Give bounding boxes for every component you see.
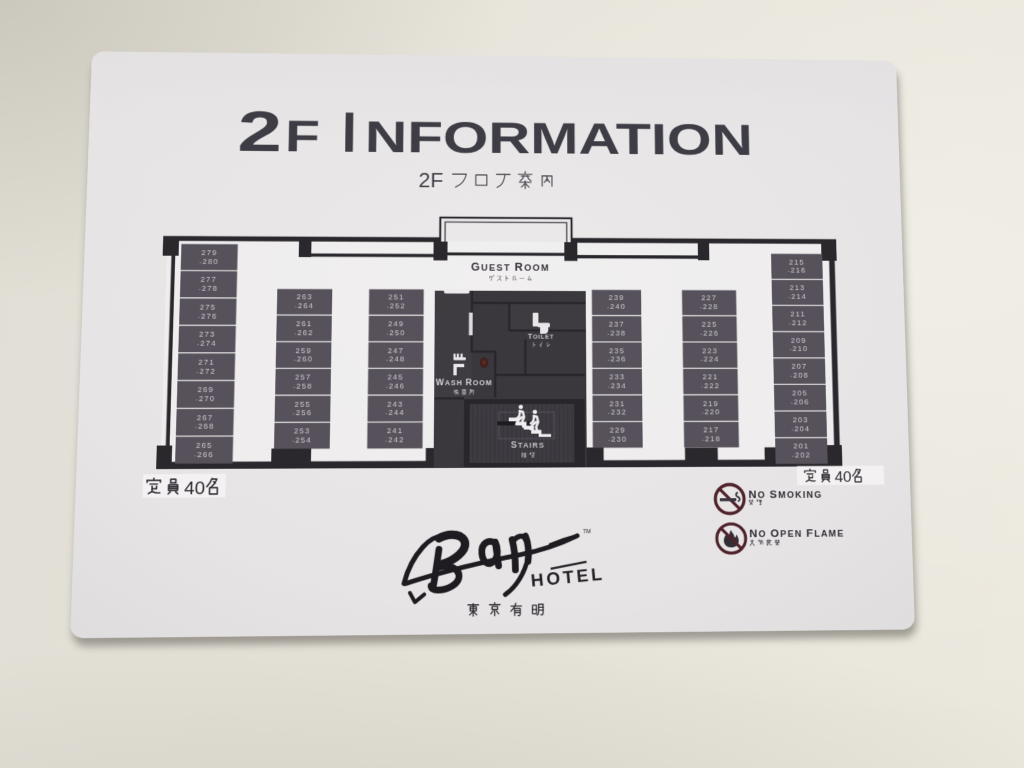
svg-text:-270: -270 bbox=[196, 394, 216, 403]
svg-text:217: 217 bbox=[703, 425, 719, 434]
svg-text:-220: -220 bbox=[702, 408, 721, 417]
svg-text:271: 271 bbox=[198, 357, 215, 366]
svg-text:255: 255 bbox=[294, 399, 311, 408]
svg-text:2F: 2F bbox=[418, 169, 443, 192]
svg-text:2: 2 bbox=[237, 100, 283, 164]
svg-text:-248: -248 bbox=[386, 355, 405, 364]
svg-text:-258: -258 bbox=[293, 381, 313, 390]
svg-text:-242: -242 bbox=[385, 435, 404, 444]
svg-text:-280: -280 bbox=[199, 257, 219, 266]
svg-text:215: 215 bbox=[789, 257, 805, 266]
svg-text:221: 221 bbox=[702, 372, 718, 381]
svg-text:40: 40 bbox=[184, 477, 206, 498]
svg-text:-240: -240 bbox=[607, 302, 626, 311]
svg-text:259: 259 bbox=[295, 346, 312, 355]
svg-text:-256: -256 bbox=[293, 408, 313, 417]
svg-text:257: 257 bbox=[295, 373, 312, 382]
svg-text:-276: -276 bbox=[198, 311, 218, 320]
svg-text:243: 243 bbox=[387, 399, 403, 408]
svg-text:253: 253 bbox=[294, 426, 311, 435]
svg-text:247: 247 bbox=[388, 346, 404, 355]
svg-text:-210: -210 bbox=[790, 344, 809, 353]
svg-text:-218: -218 bbox=[702, 434, 721, 443]
svg-text:-236: -236 bbox=[608, 355, 627, 364]
svg-text:225: 225 bbox=[702, 320, 718, 329]
svg-text:219: 219 bbox=[703, 399, 719, 408]
svg-text:-232: -232 bbox=[608, 408, 627, 417]
svg-text:-208: -208 bbox=[790, 371, 809, 380]
svg-text:227: 227 bbox=[701, 294, 717, 303]
svg-text:213: 213 bbox=[790, 283, 806, 292]
svg-text:-222: -222 bbox=[701, 381, 720, 390]
svg-text:-230: -230 bbox=[608, 435, 627, 444]
svg-text:-244: -244 bbox=[386, 408, 405, 417]
svg-text:211: 211 bbox=[790, 309, 805, 318]
svg-text:-212: -212 bbox=[789, 318, 808, 327]
svg-text:-246: -246 bbox=[386, 381, 405, 390]
svg-text:40: 40 bbox=[835, 469, 852, 486]
svg-text:229: 229 bbox=[610, 426, 626, 435]
svg-text:239: 239 bbox=[609, 293, 625, 302]
svg-text:205: 205 bbox=[792, 388, 808, 397]
svg-text:209: 209 bbox=[791, 336, 807, 345]
svg-text:NO OPEN FLAME: NO OPEN FLAME bbox=[749, 528, 845, 541]
svg-text:-260: -260 bbox=[294, 355, 313, 364]
svg-text:251: 251 bbox=[388, 293, 404, 302]
svg-text:267: 267 bbox=[197, 413, 214, 422]
svg-text:-268: -268 bbox=[195, 422, 215, 431]
svg-text:-274: -274 bbox=[197, 339, 217, 348]
svg-text:-224: -224 bbox=[701, 355, 720, 364]
svg-text:261: 261 bbox=[296, 319, 312, 328]
svg-text:245: 245 bbox=[387, 373, 403, 382]
svg-text:241: 241 bbox=[387, 426, 403, 435]
svg-text:237: 237 bbox=[609, 320, 625, 329]
svg-text:203: 203 bbox=[793, 415, 809, 424]
svg-text:-252: -252 bbox=[387, 302, 406, 311]
svg-text:223: 223 bbox=[702, 346, 718, 355]
svg-text:GUEST ROOM: GUEST ROOM bbox=[471, 262, 550, 274]
svg-text:269: 269 bbox=[197, 385, 214, 394]
svg-text:-250: -250 bbox=[386, 328, 405, 337]
svg-text:-204: -204 bbox=[791, 424, 810, 433]
svg-text:-216: -216 bbox=[788, 266, 807, 275]
svg-text:249: 249 bbox=[388, 319, 404, 328]
svg-text:-278: -278 bbox=[199, 284, 219, 293]
svg-text:-214: -214 bbox=[788, 292, 807, 301]
svg-text:-272: -272 bbox=[196, 366, 216, 375]
svg-text:F: F bbox=[285, 112, 321, 161]
svg-text:275: 275 bbox=[200, 302, 217, 311]
svg-text:235: 235 bbox=[609, 346, 625, 355]
svg-text:277: 277 bbox=[200, 275, 217, 284]
svg-text:265: 265 bbox=[196, 441, 213, 450]
svg-text:201: 201 bbox=[793, 442, 809, 451]
svg-text:263: 263 bbox=[296, 293, 312, 302]
svg-text:NO SMOKING: NO SMOKING bbox=[748, 489, 822, 502]
svg-text:-202: -202 bbox=[792, 451, 811, 460]
svg-text:-266: -266 bbox=[194, 450, 214, 459]
svg-text:I: I bbox=[341, 101, 357, 164]
svg-text:-226: -226 bbox=[700, 329, 719, 338]
svg-text:279: 279 bbox=[201, 248, 218, 257]
svg-text:-234: -234 bbox=[608, 381, 627, 390]
svg-text:-254: -254 bbox=[292, 435, 312, 444]
svg-text:-238: -238 bbox=[607, 328, 626, 337]
svg-text:-206: -206 bbox=[791, 397, 810, 406]
svg-text:231: 231 bbox=[609, 399, 625, 408]
svg-text:-264: -264 bbox=[295, 301, 314, 310]
svg-text:233: 233 bbox=[609, 372, 625, 381]
svg-text:TM: TM bbox=[583, 529, 591, 535]
svg-text:207: 207 bbox=[791, 362, 807, 371]
svg-text:-262: -262 bbox=[294, 328, 313, 337]
svg-text:STAIRS: STAIRS bbox=[511, 439, 545, 449]
svg-text:NFORMATION: NFORMATION bbox=[365, 113, 754, 165]
svg-text:273: 273 bbox=[199, 330, 216, 339]
svg-text:-228: -228 bbox=[700, 302, 719, 311]
